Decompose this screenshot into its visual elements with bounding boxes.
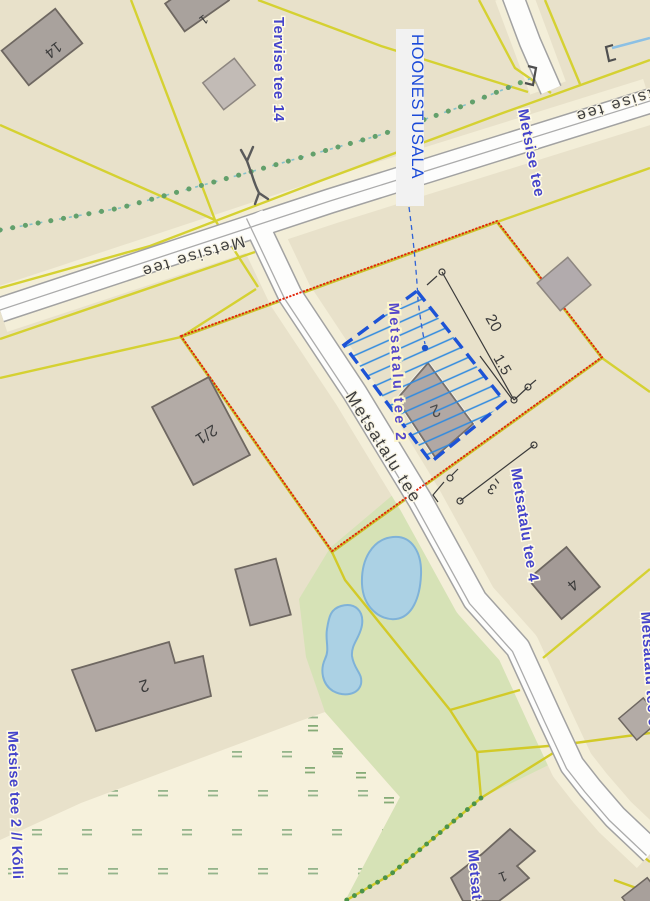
svg-text:HOONESTUSALA: HOONESTUSALA xyxy=(408,34,426,179)
svg-text:Tervise tee 14: Tervise tee 14 xyxy=(270,17,287,122)
